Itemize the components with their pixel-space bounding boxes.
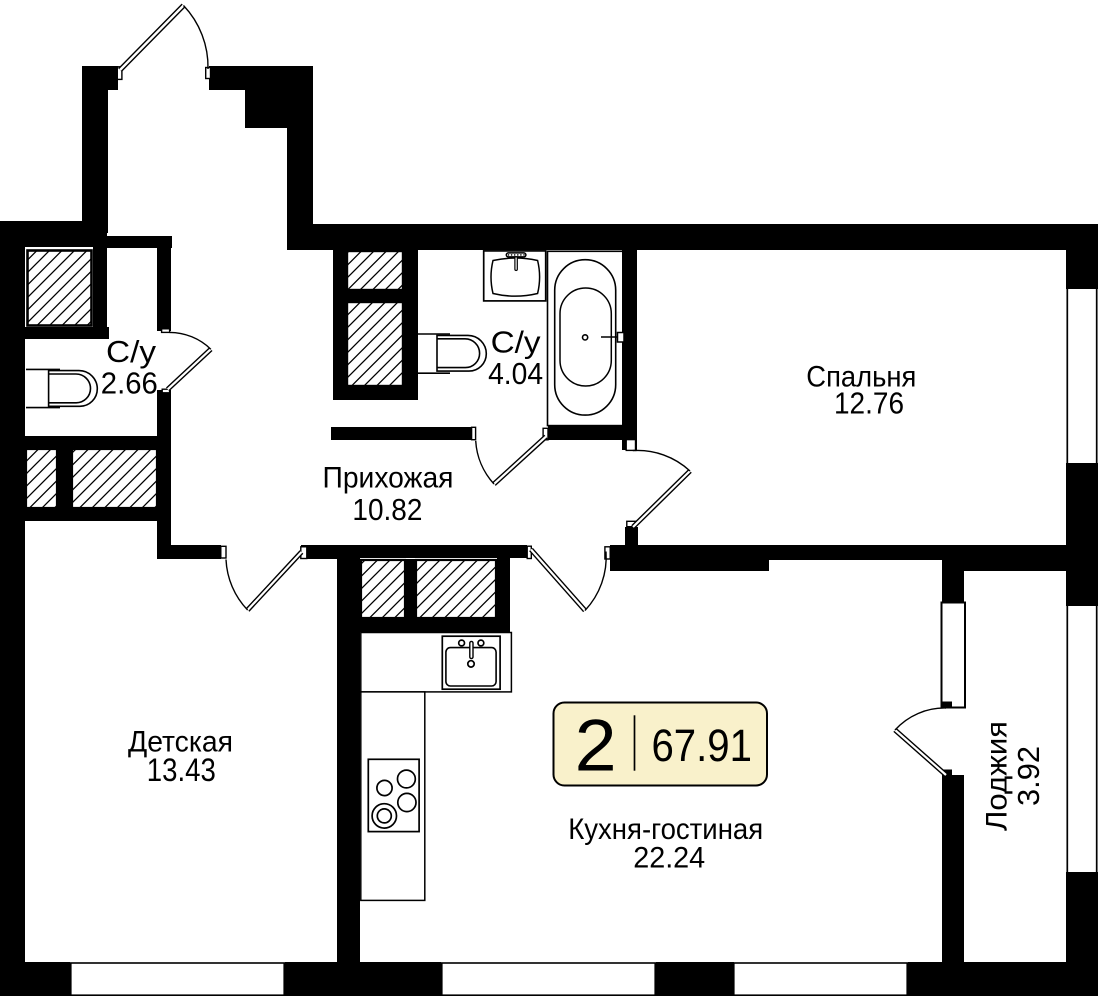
svg-text:2: 2	[575, 704, 617, 787]
svg-text:12.76: 12.76	[834, 386, 904, 421]
svg-text:4.04: 4.04	[488, 356, 543, 391]
svg-text:67.91: 67.91	[651, 720, 752, 771]
svg-text:Прихожая: Прихожая	[323, 462, 454, 495]
svg-text:2.66: 2.66	[101, 367, 158, 401]
svg-text:С/у: С/у	[491, 325, 542, 360]
svg-text:С/у: С/у	[106, 334, 157, 369]
svg-text:22.24: 22.24	[633, 842, 705, 875]
svg-text:Лоджия: Лоджия	[981, 721, 1014, 831]
svg-text:13.43: 13.43	[147, 752, 216, 788]
svg-text:10.82: 10.82	[352, 493, 422, 527]
svg-text:3.92: 3.92	[1011, 746, 1046, 806]
